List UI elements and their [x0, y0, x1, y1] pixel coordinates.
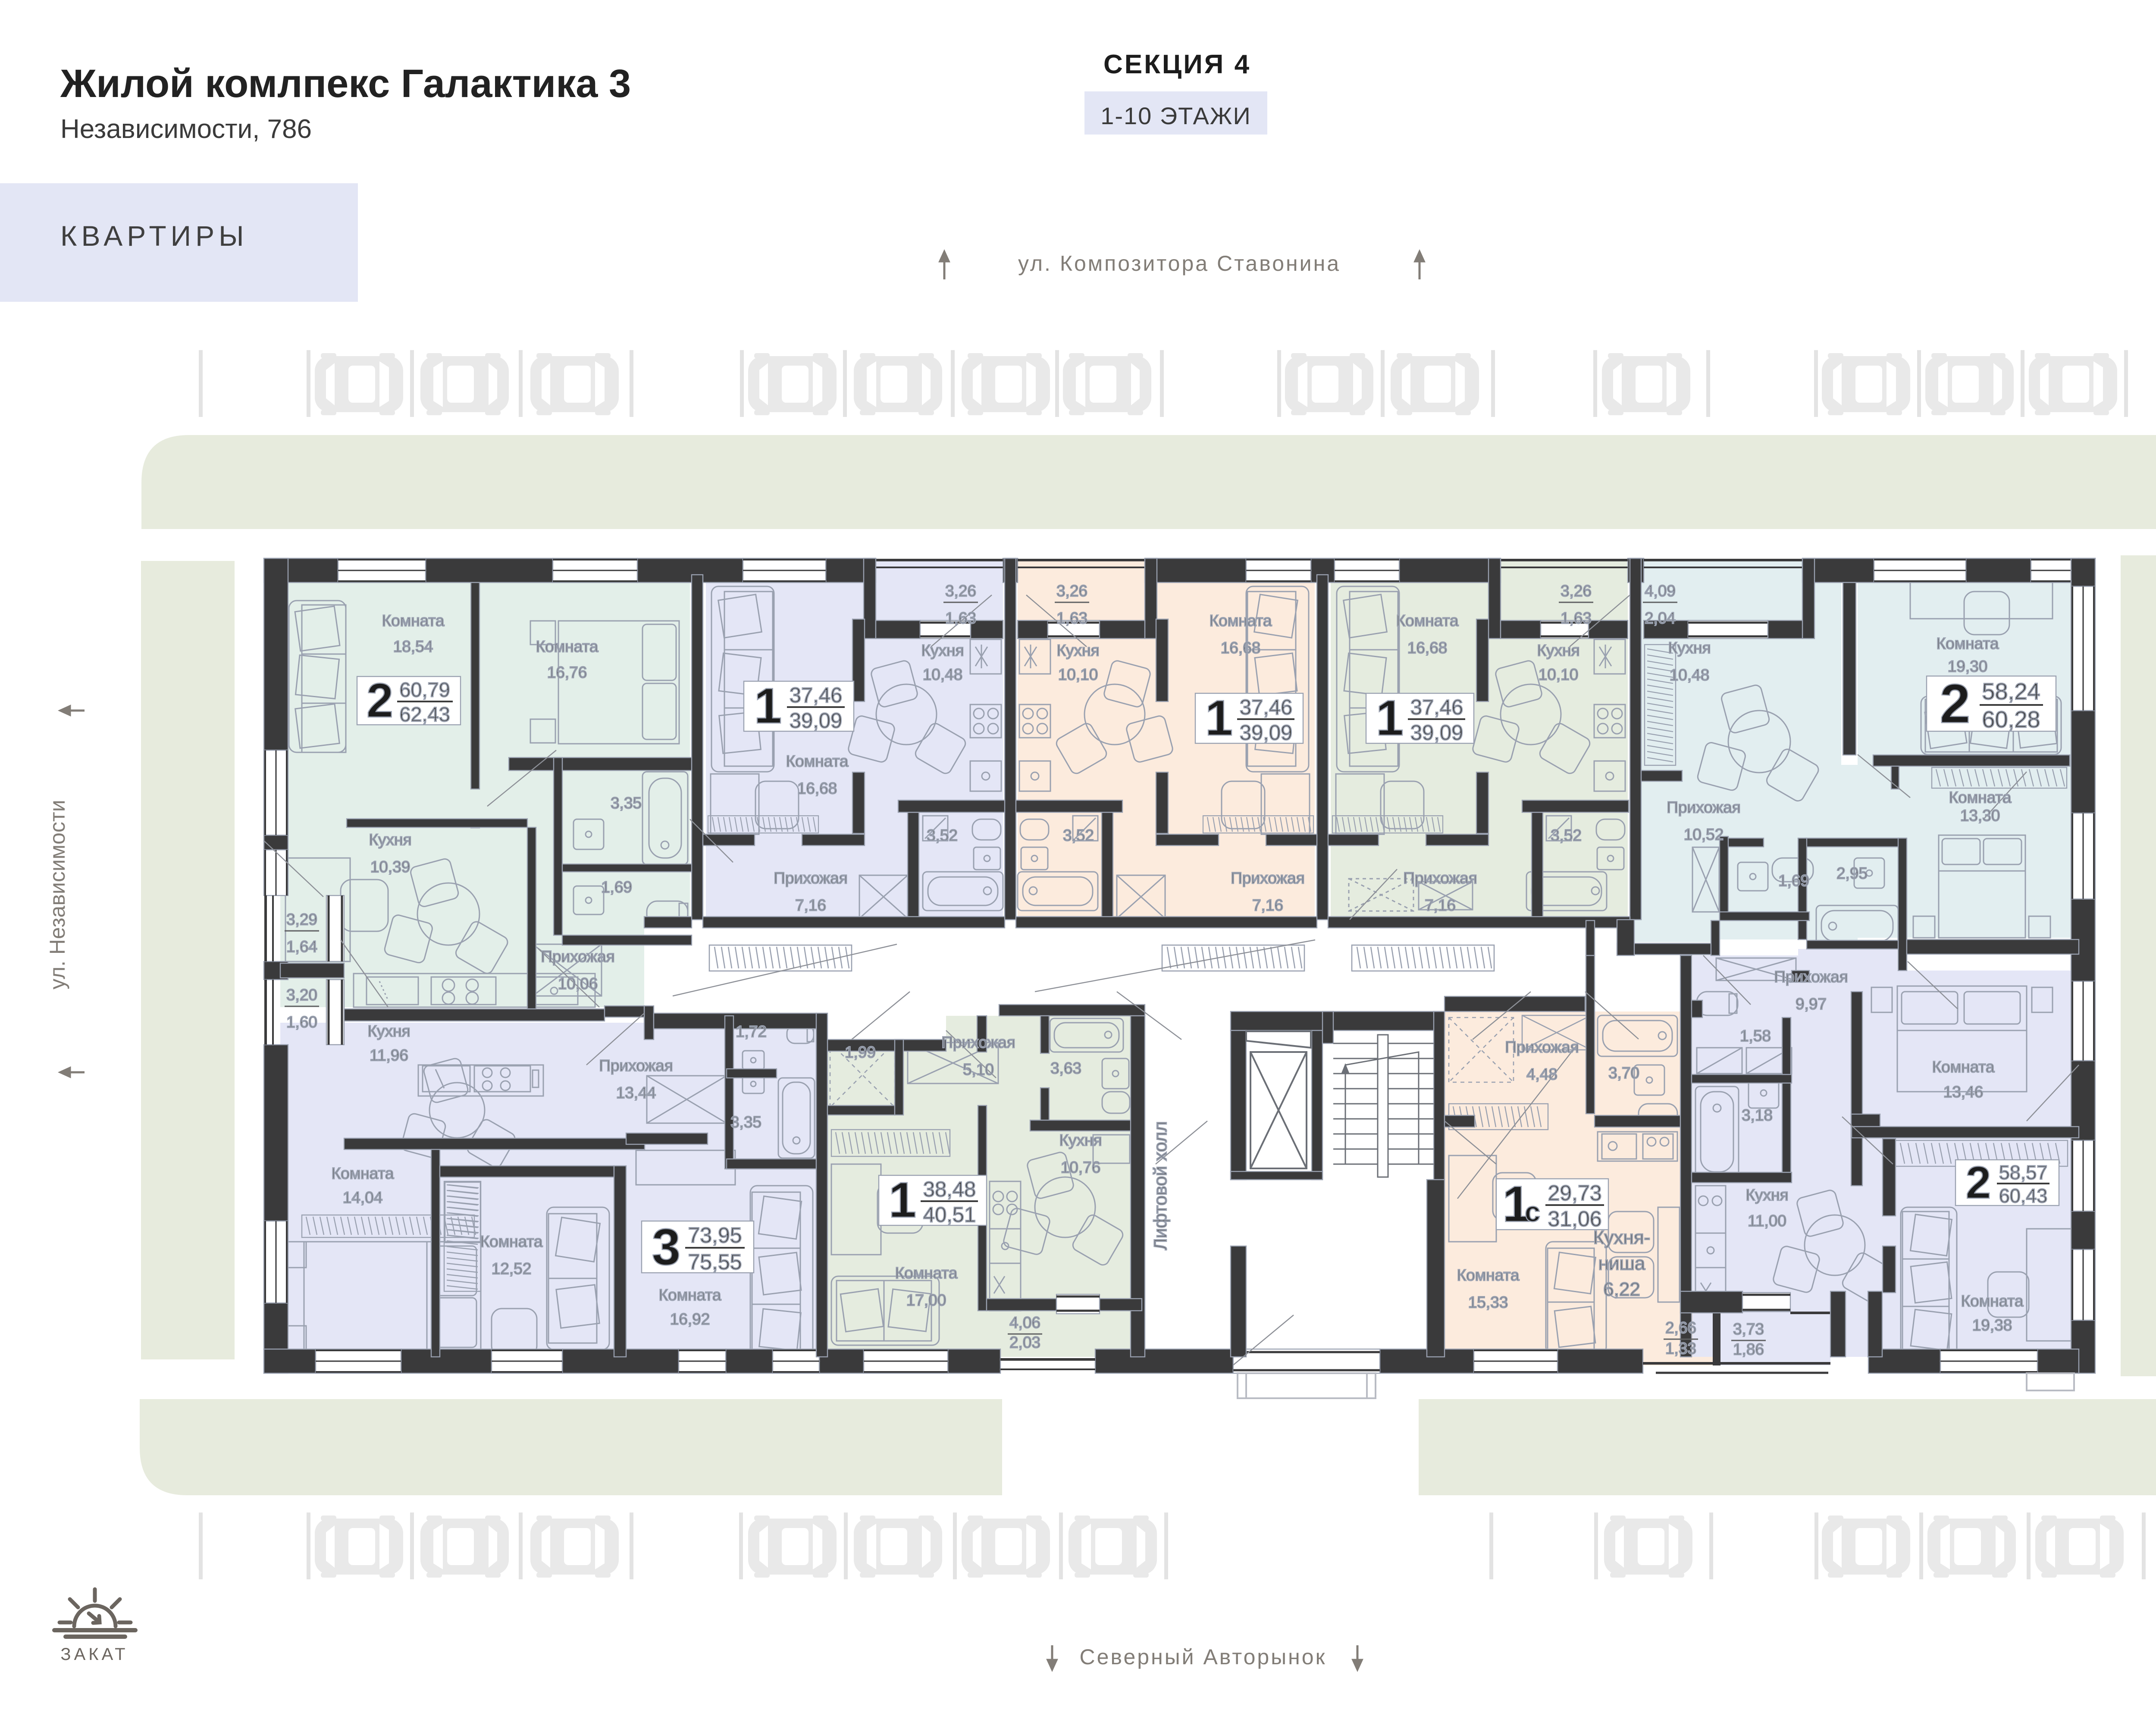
svg-text:СЕКЦИЯ 4: СЕКЦИЯ 4	[1103, 50, 1251, 79]
svg-text:Кухня: Кухня	[1668, 639, 1711, 657]
svg-text:13,30: 13,30	[1960, 807, 2000, 824]
svg-text:Комната: Комната	[332, 1165, 394, 1182]
svg-text:1,33: 1,33	[1665, 1340, 1696, 1357]
svg-text:1: 1	[1376, 690, 1404, 746]
svg-text:3,52: 3,52	[1551, 827, 1582, 844]
svg-text:2,03: 2,03	[1009, 1334, 1040, 1351]
svg-text:Кухня: Кухня	[1056, 642, 1099, 659]
svg-text:73,95: 73,95	[688, 1223, 742, 1247]
svg-text:2,66: 2,66	[1665, 1319, 1696, 1337]
svg-text:11,96: 11,96	[370, 1046, 408, 1064]
svg-text:ул. Композитора Ставонина: ул. Композитора Ставонина	[1018, 251, 1341, 276]
svg-text:10,48: 10,48	[923, 666, 963, 683]
svg-text:Комната: Комната	[1937, 635, 1999, 652]
svg-text:7,16: 7,16	[1425, 896, 1456, 914]
svg-text:38,48: 38,48	[923, 1178, 976, 1201]
svg-text:16,76: 16,76	[547, 664, 587, 681]
svg-text:75,55: 75,55	[688, 1250, 742, 1274]
svg-text:1: 1	[1205, 690, 1233, 746]
svg-text:60,79: 60,79	[399, 678, 450, 701]
svg-text:3,29: 3,29	[286, 911, 317, 928]
svg-text:2: 2	[367, 673, 393, 727]
svg-text:5,10: 5,10	[963, 1061, 994, 1078]
svg-text:3,18: 3,18	[1742, 1106, 1773, 1124]
svg-text:Комната: Комната	[1396, 612, 1459, 629]
svg-text:Комната: Комната	[382, 612, 445, 629]
svg-text:Северный Авторынок: Северный Авторынок	[1080, 1645, 1327, 1669]
svg-text:4,06: 4,06	[1009, 1314, 1040, 1331]
svg-text:1,60: 1,60	[286, 1013, 317, 1031]
svg-text:Кухня-: Кухня-	[1593, 1227, 1650, 1248]
svg-text:2,95: 2,95	[1836, 864, 1868, 882]
svg-text:Кухня: Кухня	[1745, 1186, 1788, 1204]
svg-text:37,46: 37,46	[1410, 696, 1463, 719]
svg-text:3,52: 3,52	[927, 827, 958, 844]
svg-text:Комната: Комната	[480, 1233, 543, 1250]
svg-text:3,73: 3,73	[1733, 1320, 1764, 1338]
svg-text:17,00: 17,00	[906, 1291, 946, 1309]
svg-text:Комната: Комната	[1210, 612, 1272, 629]
svg-text:14,04: 14,04	[343, 1189, 383, 1206]
svg-text:11,00: 11,00	[1748, 1212, 1786, 1230]
svg-text:2: 2	[1966, 1157, 1991, 1208]
svg-text:10,48: 10,48	[1670, 666, 1710, 684]
svg-text:Комната: Комната	[1457, 1266, 1520, 1284]
svg-text:Прихожая: Прихожая	[541, 948, 614, 965]
svg-text:10,52: 10,52	[1684, 826, 1724, 843]
svg-text:1,64: 1,64	[286, 938, 317, 955]
svg-text:4,48: 4,48	[1526, 1065, 1557, 1083]
svg-text:29,73: 29,73	[1548, 1181, 1601, 1205]
svg-text:10,10: 10,10	[1539, 666, 1579, 683]
svg-text:37,46: 37,46	[1240, 696, 1293, 719]
svg-text:10,39: 10,39	[370, 858, 411, 876]
svg-text:3,26: 3,26	[945, 582, 976, 600]
svg-text:1,69: 1,69	[601, 878, 632, 896]
svg-text:3,26: 3,26	[1561, 582, 1592, 600]
svg-text:19,30: 19,30	[1948, 658, 1988, 675]
svg-text:Кухня: Кухня	[367, 1022, 410, 1040]
svg-text:16,68: 16,68	[797, 780, 837, 797]
svg-text:37,46: 37,46	[790, 684, 843, 707]
svg-text:Жилой комлпекс Галактика 3: Жилой комлпекс Галактика 3	[60, 62, 631, 106]
svg-text:13,44: 13,44	[616, 1084, 656, 1102]
svg-text:58,24: 58,24	[1982, 679, 2040, 705]
svg-text:1,58: 1,58	[1740, 1027, 1771, 1045]
svg-text:3,20: 3,20	[286, 986, 317, 1004]
svg-text:62,43: 62,43	[399, 703, 450, 726]
svg-text:7,16: 7,16	[1252, 896, 1283, 914]
svg-text:60,28: 60,28	[1982, 707, 2040, 733]
svg-text:3,63: 3,63	[1050, 1059, 1081, 1077]
svg-text:1: 1	[889, 1172, 917, 1228]
svg-text:16,68: 16,68	[1221, 639, 1261, 657]
svg-text:1,99: 1,99	[845, 1043, 876, 1061]
svg-text:Кухня: Кухня	[1059, 1131, 1102, 1149]
svg-text:Прихожая: Прихожая	[1231, 869, 1304, 887]
svg-text:9,97: 9,97	[1796, 995, 1827, 1013]
svg-text:Прихожая: Прихожая	[1505, 1038, 1579, 1056]
svg-text:Комната: Комната	[895, 1264, 958, 1282]
svg-text:1,63: 1,63	[945, 609, 976, 627]
svg-text:60,43: 60,43	[1999, 1185, 2048, 1207]
svg-text:КВАРТИРЫ: КВАРТИРЫ	[60, 220, 248, 252]
svg-text:с: с	[1525, 1196, 1540, 1228]
svg-text:1,86: 1,86	[1733, 1340, 1764, 1358]
svg-text:13,46: 13,46	[1943, 1083, 1984, 1101]
svg-text:Кухня: Кухня	[1537, 642, 1579, 659]
svg-text:1,72: 1,72	[736, 1023, 767, 1040]
svg-text:3: 3	[652, 1218, 681, 1276]
svg-text:1,63: 1,63	[1561, 609, 1592, 627]
svg-text:39,09: 39,09	[1240, 721, 1293, 745]
svg-text:Прихожая: Прихожая	[599, 1057, 673, 1074]
svg-text:1-10 ЭТАЖИ: 1-10 ЭТАЖИ	[1100, 102, 1251, 129]
svg-text:Прихожая: Прихожая	[1667, 799, 1740, 816]
svg-text:Комната: Комната	[1932, 1058, 1995, 1076]
svg-text:Прихожая: Прихожая	[774, 869, 847, 887]
svg-text:Кухня: Кухня	[369, 831, 411, 849]
svg-text:10,06: 10,06	[558, 975, 598, 993]
svg-text:1: 1	[754, 678, 782, 734]
svg-text:Лифтовой холл: Лифтовой холл	[1150, 1121, 1170, 1250]
svg-text:3,52: 3,52	[1063, 827, 1094, 844]
svg-text:7,16: 7,16	[795, 896, 826, 914]
svg-text:Комната: Комната	[786, 752, 849, 770]
svg-text:Независимости, 786: Независимости, 786	[60, 114, 312, 144]
svg-text:ЗАКАТ: ЗАКАТ	[60, 1645, 128, 1664]
svg-text:18,54: 18,54	[393, 638, 433, 655]
svg-text:12,52: 12,52	[492, 1260, 532, 1278]
svg-text:1,69: 1,69	[1778, 872, 1809, 889]
svg-text:Прихожая: Прихожая	[941, 1033, 1015, 1051]
svg-text:31,06: 31,06	[1548, 1207, 1601, 1231]
svg-text:3,35: 3,35	[611, 794, 642, 812]
svg-text:1,63: 1,63	[1056, 609, 1087, 627]
svg-text:3,70: 3,70	[1608, 1064, 1639, 1082]
svg-text:10,10: 10,10	[1058, 666, 1098, 683]
svg-text:39,09: 39,09	[1410, 721, 1463, 745]
svg-text:Комната: Комната	[1961, 1292, 2024, 1310]
svg-text:Комната: Комната	[659, 1286, 721, 1304]
svg-text:16,68: 16,68	[1407, 639, 1448, 657]
svg-text:3,35: 3,35	[730, 1113, 761, 1131]
svg-text:39,09: 39,09	[790, 709, 843, 733]
svg-text:19,38: 19,38	[1972, 1316, 2012, 1334]
svg-text:58,57: 58,57	[1999, 1162, 2048, 1184]
svg-text:Кухня: Кухня	[921, 642, 964, 659]
svg-text:Прихожая: Прихожая	[1774, 968, 1848, 986]
svg-text:ул. Независимости: ул. Независимости	[45, 800, 69, 990]
svg-text:10,76: 10,76	[1061, 1159, 1101, 1176]
svg-text:2: 2	[1940, 673, 1970, 735]
svg-text:Комната: Комната	[536, 638, 599, 655]
svg-text:ниша: ниша	[1598, 1253, 1645, 1274]
svg-text:40,51: 40,51	[923, 1203, 976, 1227]
svg-text:Прихожая: Прихожая	[1403, 869, 1477, 887]
svg-text:2,04: 2,04	[1645, 609, 1676, 627]
svg-text:6,22: 6,22	[1603, 1279, 1640, 1300]
svg-text:4,09: 4,09	[1645, 582, 1676, 600]
svg-text:15,33: 15,33	[1468, 1293, 1508, 1311]
svg-text:Комната: Комната	[1949, 789, 2012, 806]
svg-text:3,26: 3,26	[1056, 582, 1087, 600]
svg-text:16,92: 16,92	[670, 1310, 710, 1328]
